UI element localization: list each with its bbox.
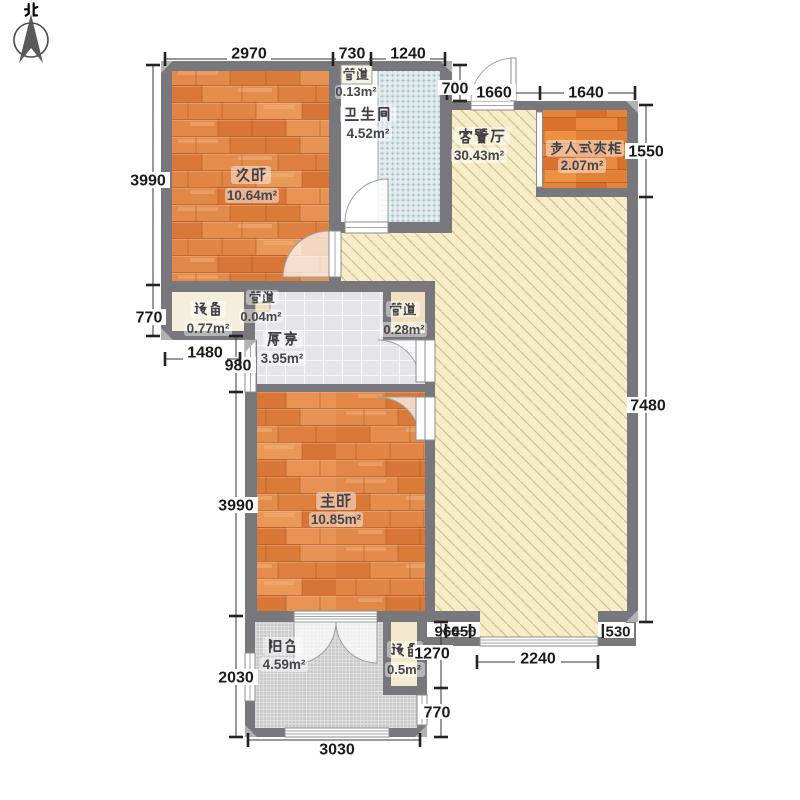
svg-text:2030: 2030 — [218, 670, 254, 687]
svg-text:770: 770 — [424, 705, 451, 722]
svg-text:2.07m²: 2.07m² — [561, 158, 604, 173]
svg-text:1270: 1270 — [414, 646, 450, 663]
svg-text:2970: 2970 — [231, 46, 267, 63]
svg-text:4.52m²: 4.52m² — [347, 126, 390, 141]
svg-text:450: 450 — [451, 624, 476, 641]
svg-text:0.04m²: 0.04m² — [240, 309, 282, 324]
svg-text:3990: 3990 — [218, 498, 254, 515]
svg-text:4.59m²: 4.59m² — [263, 657, 306, 672]
svg-text:530: 530 — [605, 624, 630, 641]
svg-text:700: 700 — [442, 81, 469, 98]
svg-text:30.43m²: 30.43m² — [454, 148, 505, 163]
svg-text:1660: 1660 — [476, 85, 512, 102]
svg-text:3.95m²: 3.95m² — [261, 351, 304, 366]
svg-text:770: 770 — [136, 310, 163, 327]
svg-text:0.13m²: 0.13m² — [335, 84, 377, 99]
svg-text:7480: 7480 — [630, 398, 666, 415]
svg-text:10.85m²: 10.85m² — [311, 512, 362, 527]
svg-text:3990: 3990 — [130, 173, 166, 190]
svg-text:730: 730 — [339, 46, 366, 63]
svg-text:1550: 1550 — [628, 144, 664, 161]
svg-text:10.64m²: 10.64m² — [227, 188, 278, 203]
svg-text:3030: 3030 — [319, 742, 355, 759]
svg-text:2240: 2240 — [520, 651, 556, 668]
svg-text:0.28m²: 0.28m² — [383, 322, 425, 337]
svg-text:1480: 1480 — [187, 345, 223, 362]
svg-text:0.77m²: 0.77m² — [187, 321, 230, 336]
svg-text:1240: 1240 — [390, 46, 426, 63]
svg-text:1640: 1640 — [568, 85, 604, 102]
svg-text:980: 980 — [225, 358, 252, 375]
svg-text:0.5m²: 0.5m² — [387, 662, 422, 677]
